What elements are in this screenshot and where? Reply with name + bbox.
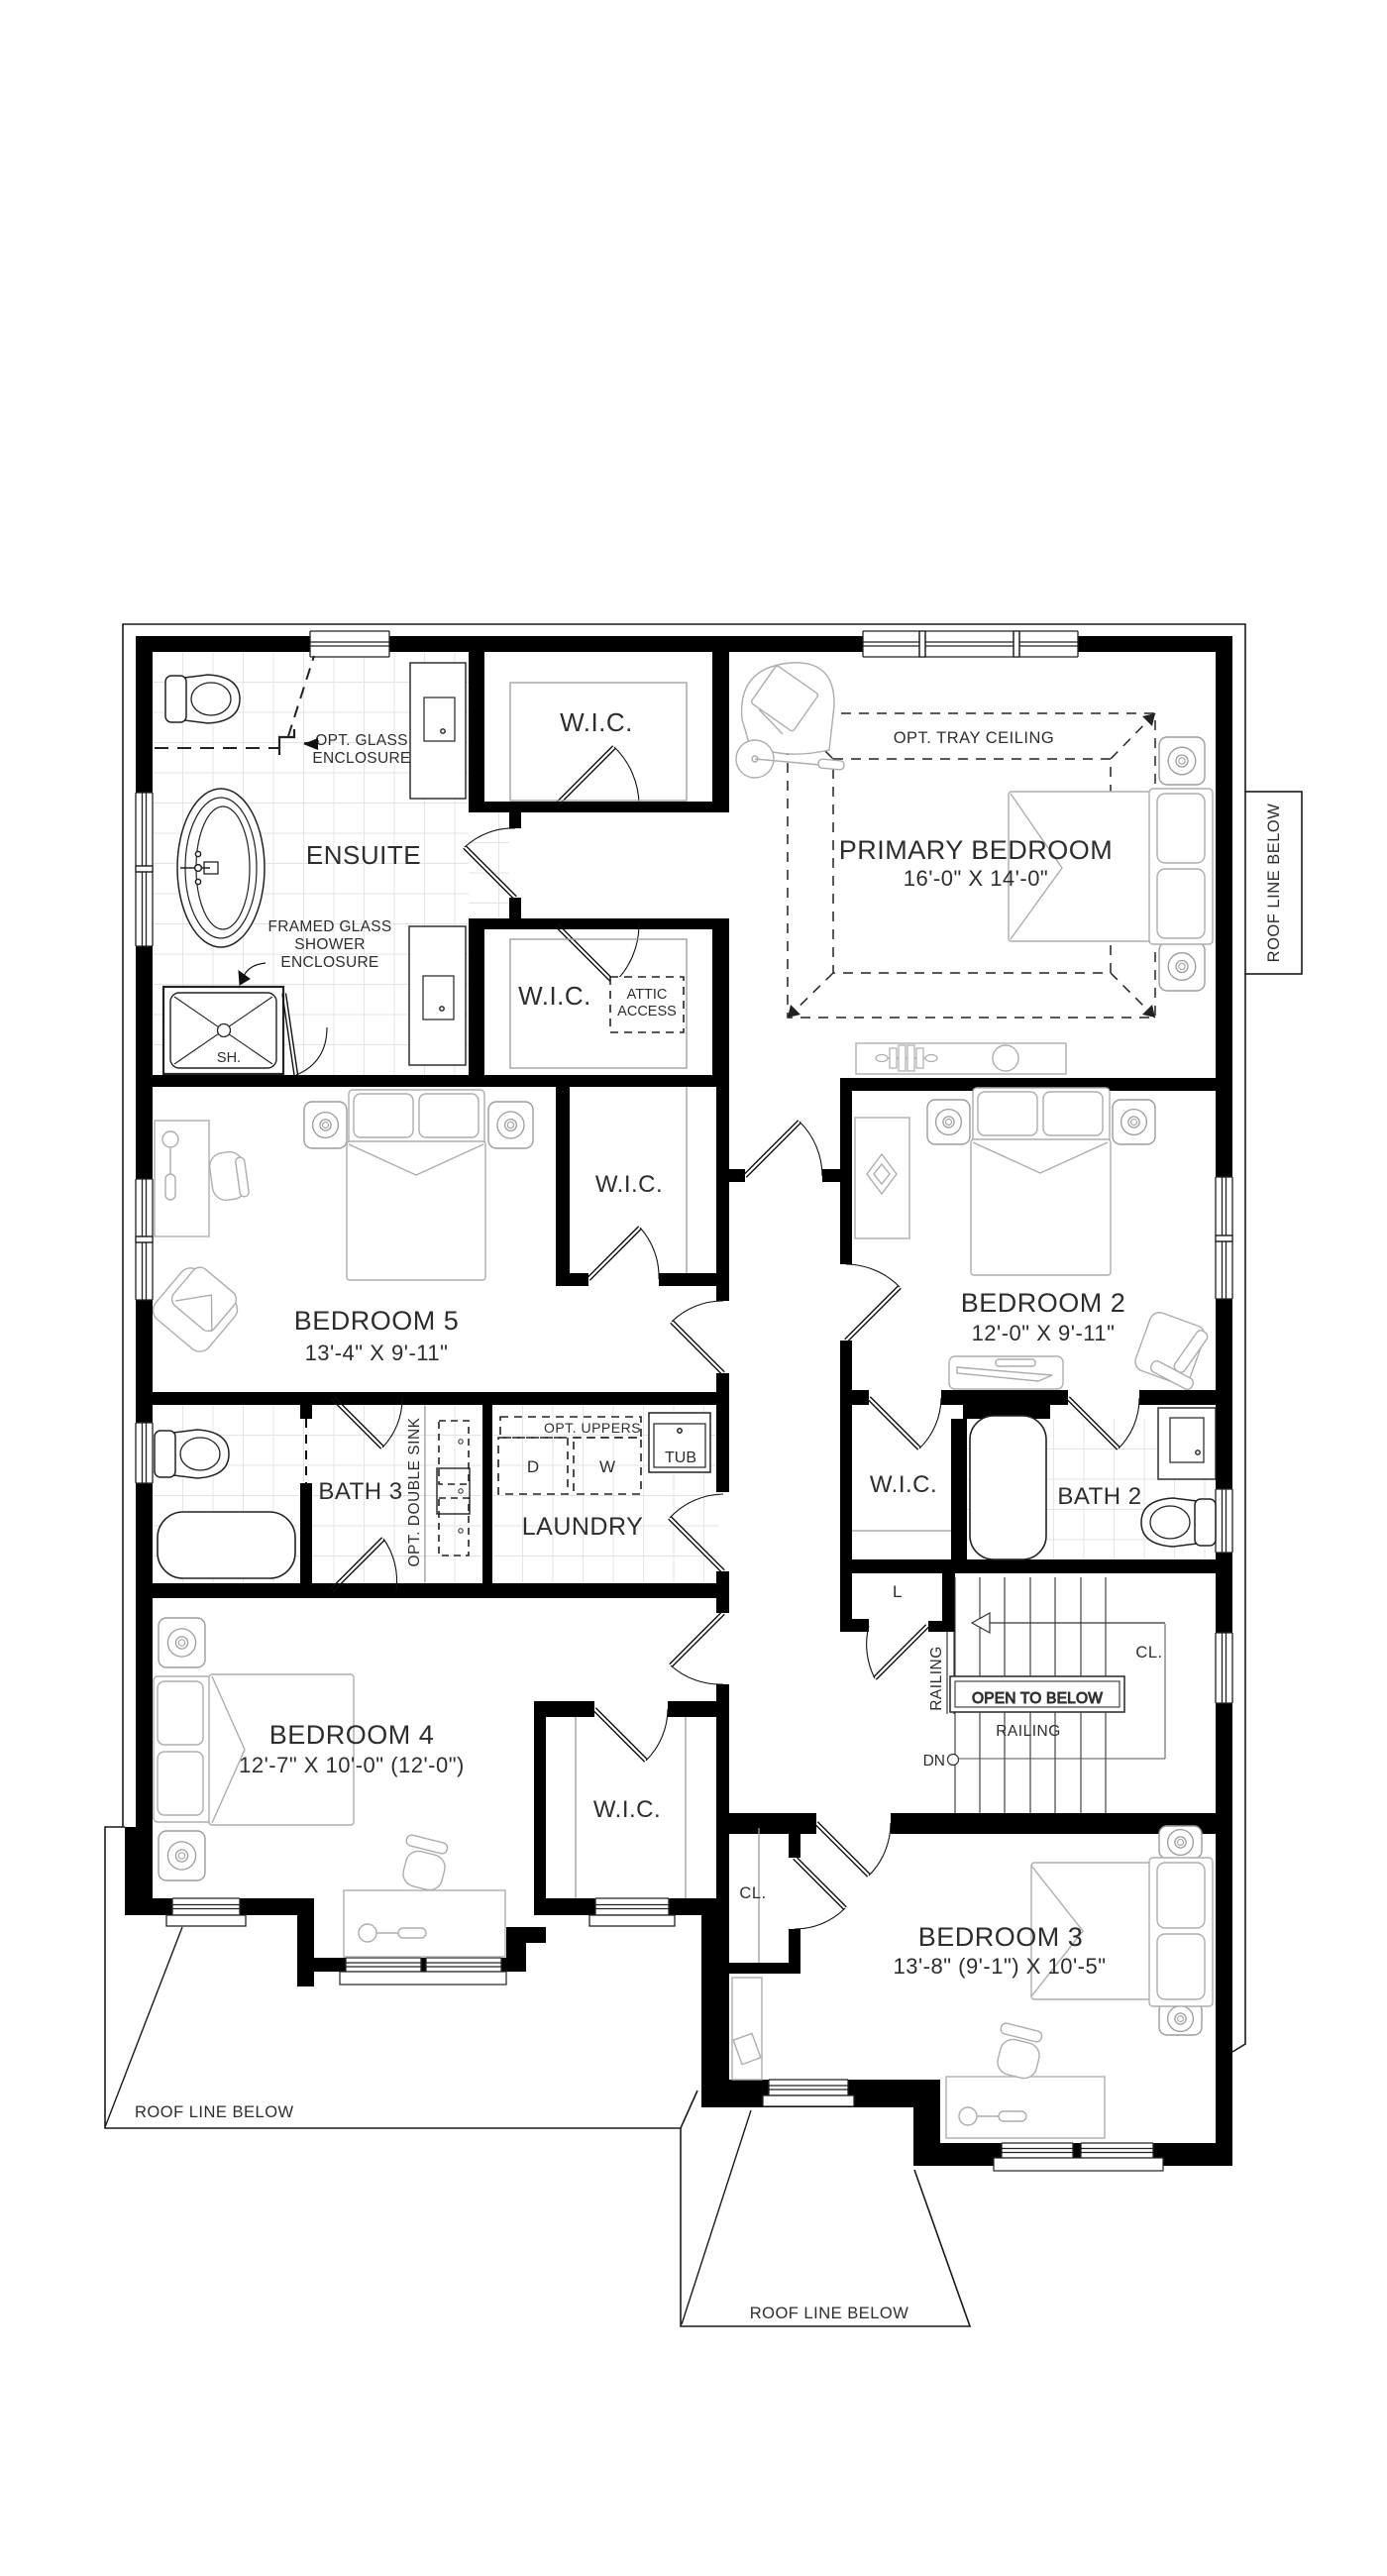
svg-text:16'-0" X 14'-0": 16'-0" X 14'-0"	[904, 866, 1048, 891]
svg-text:D: D	[527, 1457, 539, 1476]
svg-text:TUB: TUB	[665, 1449, 696, 1466]
svg-text:PRIMARY BEDROOM: PRIMARY BEDROOM	[839, 835, 1114, 865]
svg-text:ENCLOSURE: ENCLOSURE	[280, 954, 378, 971]
svg-text:W.I.C.: W.I.C.	[595, 1171, 663, 1198]
svg-text:OPT. TRAY CEILING: OPT. TRAY CEILING	[894, 729, 1055, 747]
svg-text:W.I.C.: W.I.C.	[593, 1796, 661, 1823]
svg-text:ATTIC: ATTIC	[627, 987, 668, 1003]
svg-text:CL.: CL.	[1135, 1644, 1162, 1662]
svg-text:BEDROOM 2: BEDROOM 2	[961, 1288, 1126, 1318]
svg-text:L: L	[893, 1582, 903, 1601]
svg-text:FRAMED GLASS: FRAMED GLASS	[267, 918, 391, 935]
svg-text:ENSUITE: ENSUITE	[306, 840, 421, 870]
svg-text:ROOF LINE BELOW: ROOF LINE BELOW	[135, 2103, 294, 2121]
svg-text:W.I.C.: W.I.C.	[518, 981, 591, 1011]
svg-text:W.I.C.: W.I.C.	[560, 707, 633, 737]
svg-text:OPT. UPPERS: OPT. UPPERS	[544, 1420, 641, 1436]
svg-text:BEDROOM 3: BEDROOM 3	[918, 1922, 1084, 1952]
svg-text:13'-8" (9'-1") X 10'-5": 13'-8" (9'-1") X 10'-5"	[893, 1954, 1106, 1979]
svg-text:RAILING: RAILING	[996, 1723, 1061, 1740]
svg-text:12'-7" X 10'-0" (12'-0"): 12'-7" X 10'-0" (12'-0")	[239, 1753, 465, 1777]
svg-text:DN: DN	[923, 1753, 945, 1770]
svg-text:BEDROOM 4: BEDROOM 4	[269, 1720, 435, 1750]
svg-text:W: W	[599, 1457, 615, 1476]
svg-text:ROOF LINE BELOW: ROOF LINE BELOW	[1265, 804, 1283, 963]
svg-text:BEDROOM 5: BEDROOM 5	[294, 1306, 460, 1336]
svg-text:OPT. DOUBLE SINK: OPT. DOUBLE SINK	[406, 1417, 423, 1566]
svg-text:CL.: CL.	[739, 1884, 766, 1902]
svg-text:13'-4" X 9'-11": 13'-4" X 9'-11"	[305, 1341, 449, 1365]
svg-text:OPEN TO BELOW: OPEN TO BELOW	[972, 1690, 1103, 1707]
svg-text:OPT. GLASS: OPT. GLASS	[315, 732, 407, 749]
svg-text:BATH 3: BATH 3	[318, 1478, 402, 1505]
svg-text:W.I.C.: W.I.C.	[870, 1471, 937, 1498]
svg-text:SHOWER: SHOWER	[294, 936, 366, 953]
svg-text:ENCLOSURE: ENCLOSURE	[312, 750, 410, 767]
svg-text:RAILING: RAILING	[928, 1646, 945, 1711]
svg-text:LAUNDRY: LAUNDRY	[522, 1513, 644, 1541]
svg-text:BATH 2: BATH 2	[1057, 1483, 1141, 1510]
svg-text:12'-0" X 9'-11": 12'-0" X 9'-11"	[972, 1321, 1116, 1345]
svg-text:SH.: SH.	[217, 1050, 241, 1066]
svg-text:ACCESS: ACCESS	[617, 1004, 677, 1020]
svg-text:ROOF LINE BELOW: ROOF LINE BELOW	[750, 2305, 909, 2322]
